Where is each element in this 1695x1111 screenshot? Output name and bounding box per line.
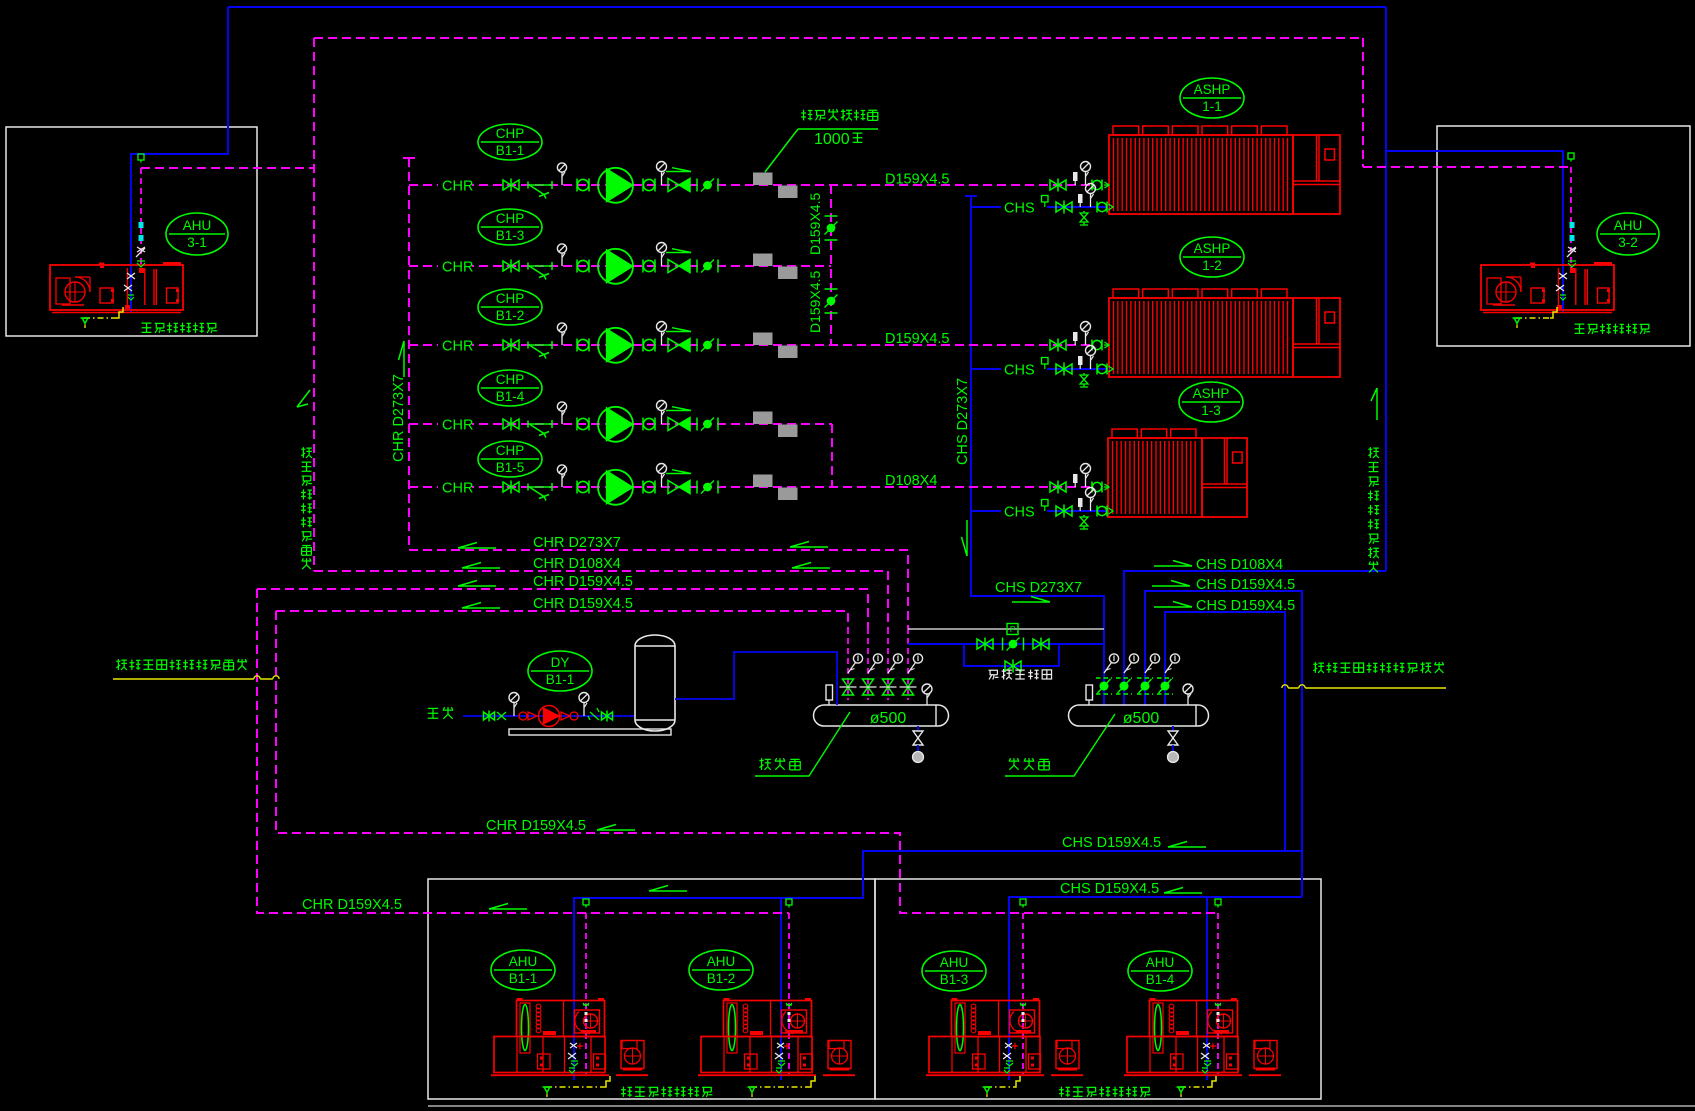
svg-text:AHU: AHU bbox=[1614, 218, 1643, 233]
svg-text:CHP: CHP bbox=[496, 443, 525, 458]
svg-text:AHU: AHU bbox=[183, 218, 212, 233]
svg-text:ø500: ø500 bbox=[870, 710, 907, 727]
svg-text:1000: 1000 bbox=[814, 131, 850, 148]
svg-text:B1-2: B1-2 bbox=[496, 308, 525, 323]
svg-text:1-3: 1-3 bbox=[1201, 403, 1221, 418]
svg-text:D159X4.5: D159X4.5 bbox=[885, 331, 950, 347]
svg-text:CHS D159X4.5: CHS D159X4.5 bbox=[1196, 577, 1295, 593]
svg-text:B1-1: B1-1 bbox=[496, 143, 525, 158]
svg-text:B1-1: B1-1 bbox=[546, 672, 575, 687]
svg-text:CHP: CHP bbox=[496, 372, 525, 387]
svg-text:DY: DY bbox=[551, 655, 570, 670]
svg-text:CHS D159X4.5: CHS D159X4.5 bbox=[1062, 835, 1161, 851]
svg-text:CHS D159X4.5: CHS D159X4.5 bbox=[1060, 881, 1159, 897]
svg-text:CHR: CHR bbox=[442, 260, 473, 276]
svg-text:B1-3: B1-3 bbox=[496, 228, 525, 243]
svg-text:ASHP: ASHP bbox=[1194, 82, 1231, 97]
svg-text:ASHP: ASHP bbox=[1193, 386, 1230, 401]
svg-text:B1-5: B1-5 bbox=[496, 460, 525, 475]
svg-text:AHU: AHU bbox=[940, 955, 969, 970]
svg-text:B1-4: B1-4 bbox=[1146, 972, 1175, 987]
svg-text:CHP: CHP bbox=[496, 291, 525, 306]
svg-text:CHR D108X4: CHR D108X4 bbox=[533, 556, 621, 572]
svg-text:ø500: ø500 bbox=[1123, 710, 1160, 727]
svg-text:P: P bbox=[1010, 625, 1015, 634]
svg-text:CHR: CHR bbox=[442, 339, 473, 355]
svg-text:CHR D159X4.5: CHR D159X4.5 bbox=[302, 897, 402, 913]
svg-text:B1-4: B1-4 bbox=[496, 389, 525, 404]
svg-text:D159X4.5: D159X4.5 bbox=[807, 271, 823, 333]
svg-text:CHP: CHP bbox=[496, 126, 525, 141]
svg-text:CHR D159X4.5: CHR D159X4.5 bbox=[533, 574, 633, 590]
svg-text:B1-1: B1-1 bbox=[509, 971, 538, 986]
svg-text:CHR D273X7: CHR D273X7 bbox=[391, 374, 407, 462]
svg-text:D159X4.5: D159X4.5 bbox=[885, 172, 950, 188]
svg-text:CHR D159X4.5: CHR D159X4.5 bbox=[533, 596, 633, 612]
svg-text:CHS: CHS bbox=[1004, 363, 1035, 379]
svg-text:CHS: CHS bbox=[1004, 201, 1035, 217]
svg-text:AHU: AHU bbox=[509, 954, 538, 969]
svg-text:B1-2: B1-2 bbox=[707, 971, 736, 986]
svg-text:D108X4: D108X4 bbox=[885, 473, 937, 489]
svg-text:1-2: 1-2 bbox=[1202, 258, 1222, 273]
svg-text:AHU: AHU bbox=[707, 954, 736, 969]
svg-text:CHS D273X7: CHS D273X7 bbox=[955, 378, 971, 465]
svg-text:CHR D273X7: CHR D273X7 bbox=[533, 535, 621, 551]
svg-text:CHR: CHR bbox=[442, 481, 473, 497]
svg-text:CHS D159X4.5: CHS D159X4.5 bbox=[1196, 598, 1295, 614]
svg-text:AHU: AHU bbox=[1146, 955, 1175, 970]
svg-text:3-1: 3-1 bbox=[187, 235, 207, 250]
svg-text:CHS D273X7: CHS D273X7 bbox=[995, 580, 1082, 596]
svg-text:CHR D159X4.5: CHR D159X4.5 bbox=[486, 818, 586, 834]
svg-text:3-2: 3-2 bbox=[1618, 235, 1638, 250]
svg-text:B1-3: B1-3 bbox=[940, 972, 969, 987]
svg-text:ASHP: ASHP bbox=[1194, 241, 1231, 256]
svg-text:D159X4.5: D159X4.5 bbox=[807, 193, 823, 255]
svg-text:CHS: CHS bbox=[1004, 505, 1035, 521]
svg-text:CHR: CHR bbox=[442, 418, 473, 434]
svg-text:CHP: CHP bbox=[496, 211, 525, 226]
svg-text:1-1: 1-1 bbox=[1202, 99, 1222, 114]
svg-text:CHR: CHR bbox=[442, 179, 473, 195]
svg-text:CHS D108X4: CHS D108X4 bbox=[1196, 557, 1283, 573]
